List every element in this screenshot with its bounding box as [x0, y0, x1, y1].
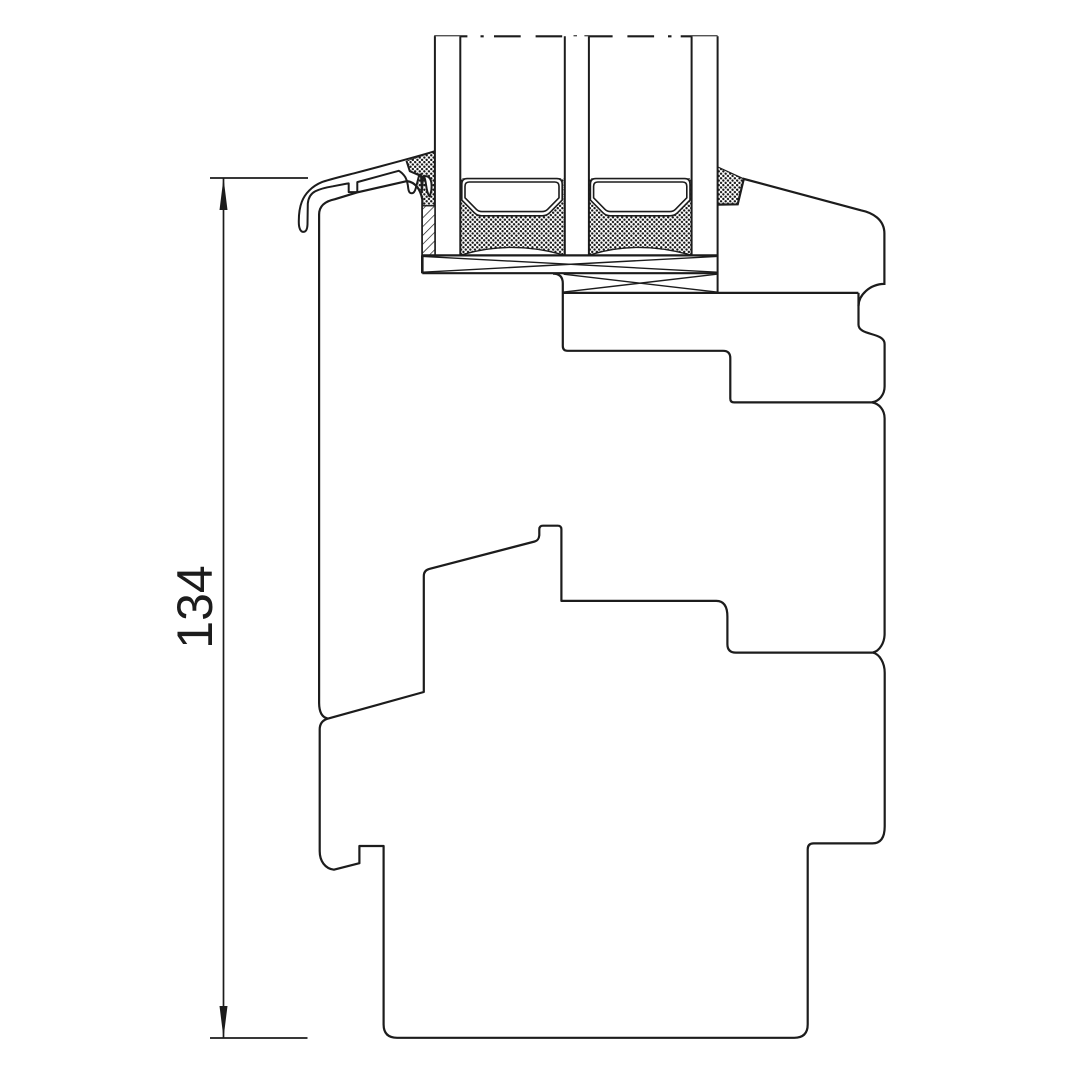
svg-text:134: 134: [167, 565, 223, 648]
